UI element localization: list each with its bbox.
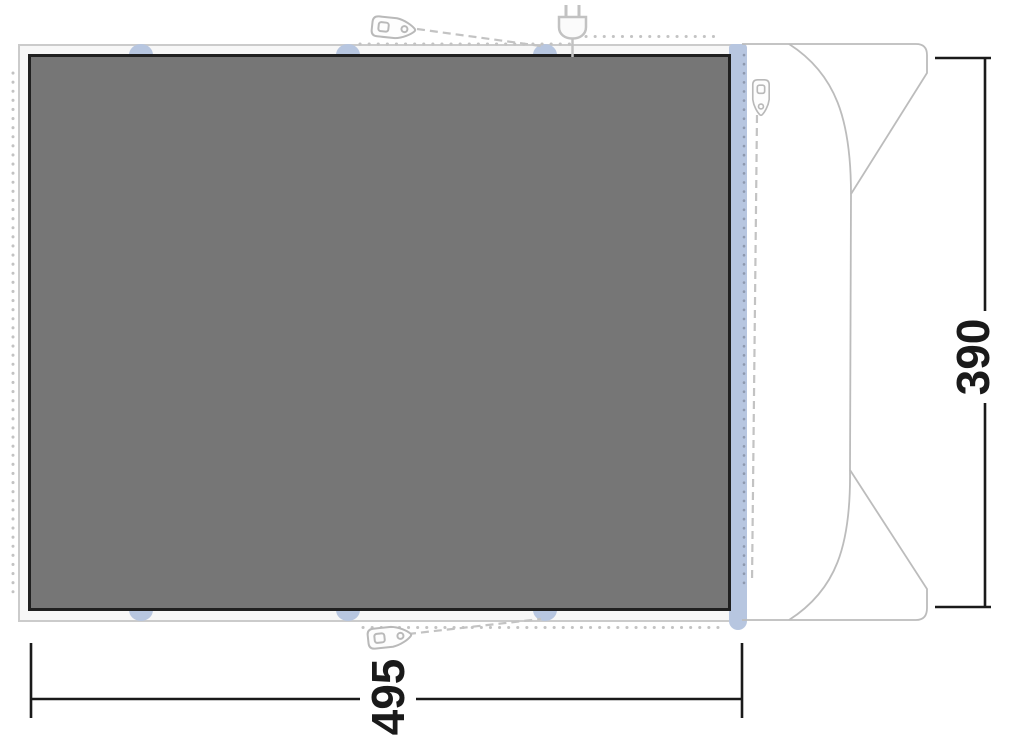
vehicle-curve-top bbox=[789, 44, 851, 194]
guy-line-bottom bbox=[408, 619, 541, 634]
power-plug-icon bbox=[559, 5, 586, 57]
plug-prongs bbox=[566, 5, 579, 17]
depth-dimension-label: 390 bbox=[923, 307, 1010, 407]
tent-peg-icon-top bbox=[371, 16, 416, 40]
guy-line-side bbox=[752, 115, 757, 583]
vehicle-body-outline bbox=[742, 44, 927, 620]
diagram-overlay bbox=[0, 0, 1010, 742]
plug-body bbox=[559, 17, 586, 39]
tarp-footprint-diagram: 495 390 bbox=[0, 0, 1010, 742]
width-dimension-label: 495 bbox=[338, 647, 438, 742]
tent-peg-icon-bottom bbox=[367, 625, 412, 649]
tent-peg-icon-side bbox=[753, 80, 769, 115]
vehicle-outline bbox=[742, 44, 927, 620]
vehicle-curve-bottom bbox=[789, 470, 850, 620]
